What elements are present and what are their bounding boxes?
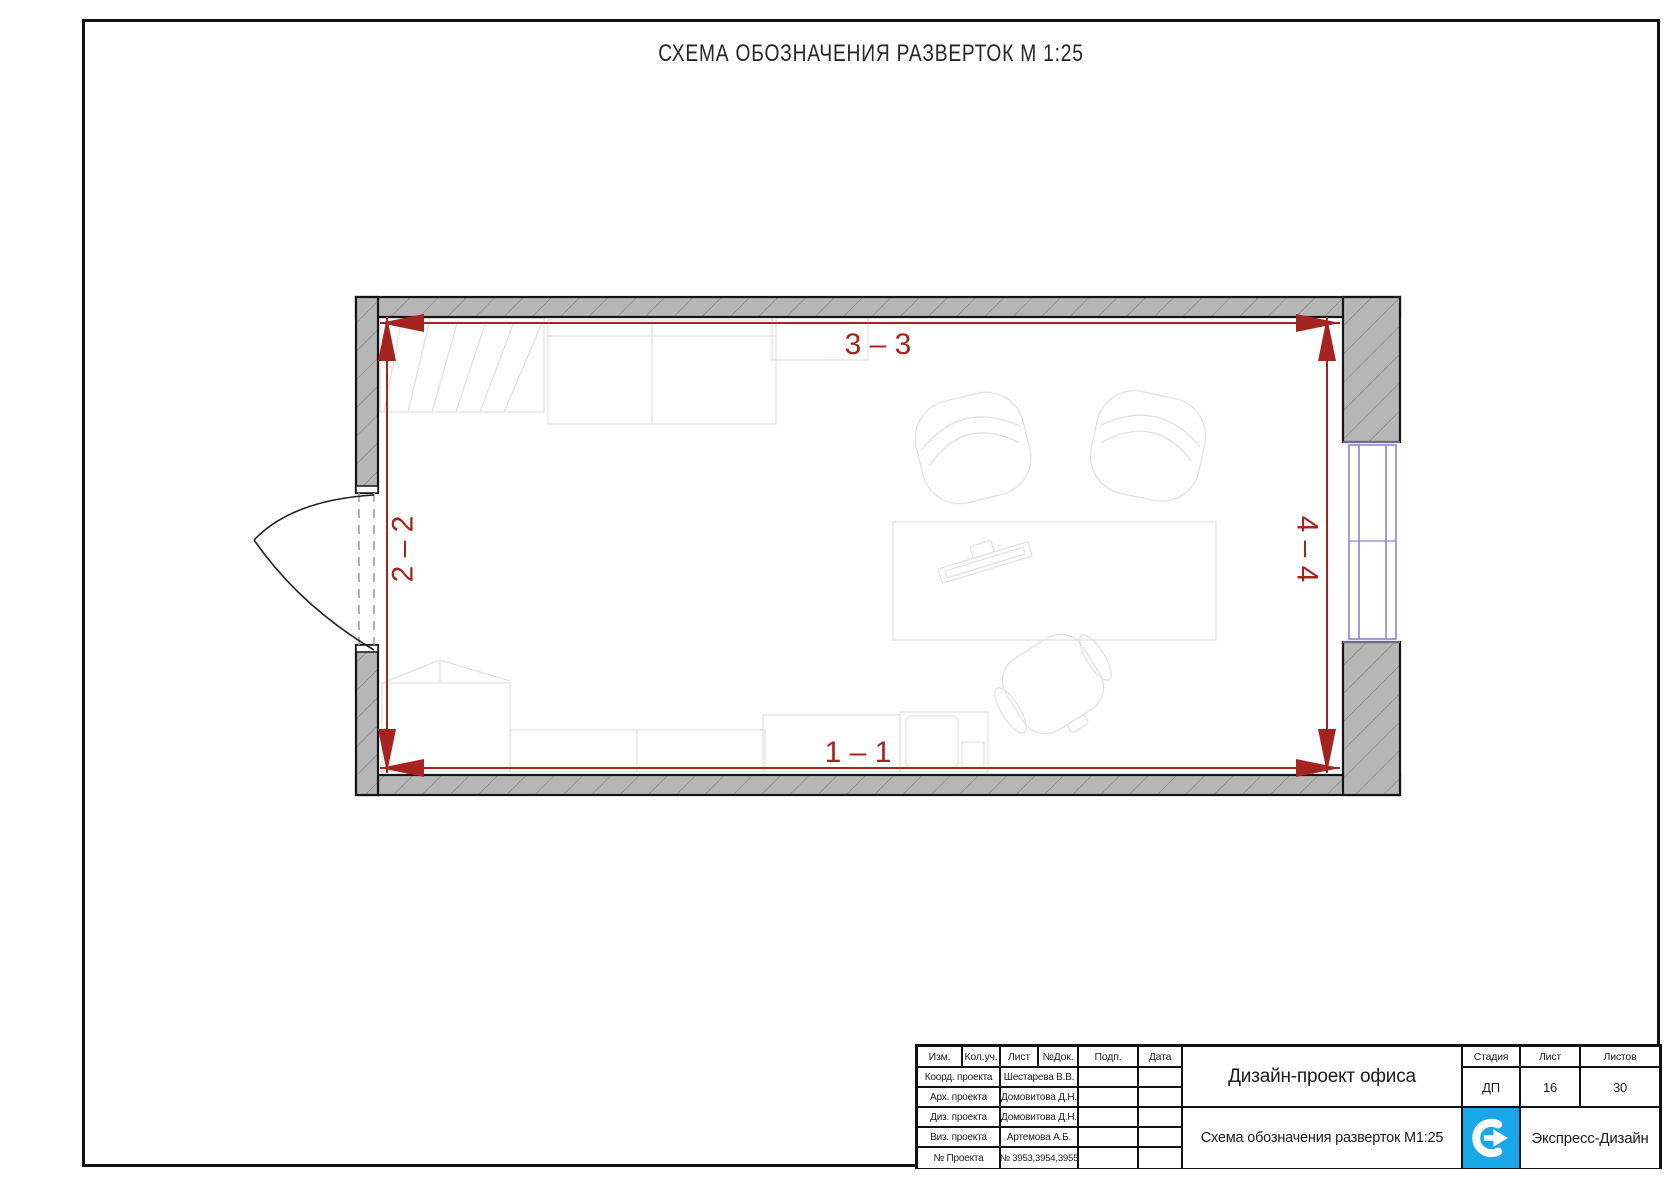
sheets-total-header: Листов <box>1580 1046 1660 1067</box>
tb-row-label: Арх. проекта <box>917 1087 1000 1107</box>
wall-right-upper <box>1343 297 1400 442</box>
sheet-number-value: 16 <box>1520 1067 1580 1107</box>
elevation-marker-labels: 3 – 3 1 – 1 2 – 2 4 – 4 <box>387 328 1324 769</box>
tb-row-date <box>1138 1067 1182 1087</box>
wall-top <box>356 297 1400 317</box>
tb-header-list: Лист <box>1000 1046 1038 1067</box>
marker-right: 4 – 4 <box>1291 516 1324 583</box>
coat-rack <box>382 660 510 771</box>
marker-top: 3 – 3 <box>845 328 912 361</box>
project-title: Дизайн-проект офиса <box>1182 1046 1462 1107</box>
door <box>254 486 378 652</box>
tb-header-izm: Изм. <box>917 1046 962 1067</box>
tb-row-label: № Проекта <box>917 1147 1000 1169</box>
tb-header-ndok: №Док. <box>1038 1046 1078 1067</box>
page-title-wrap: СХЕМА ОБОЗНАЧЕНИЯ РАЗВЕРТОК М 1:25 <box>82 40 1660 68</box>
tub-chair-1 <box>907 384 1039 512</box>
sheets-total-value: 30 <box>1580 1067 1660 1107</box>
sheet-number-header: Лист <box>1520 1046 1580 1067</box>
tb-row-sign <box>1078 1107 1138 1127</box>
tb-row-label: Виз. проекта <box>917 1127 1000 1147</box>
drawing-sheet: СХЕМА ОБОЗНАЧЕНИЯ РАЗВЕРТОК М 1:25 <box>0 0 1680 1187</box>
wall-right-lower <box>1343 642 1400 795</box>
tb-row-value: Шестарева В.В. <box>1000 1067 1078 1087</box>
tb-header-koluch: Кол.уч. <box>962 1046 1000 1067</box>
tb-row-sign <box>1078 1127 1138 1147</box>
marker-bottom: 1 – 1 <box>825 736 892 769</box>
tb-row-value: Домовитова Д.Н. <box>1000 1107 1078 1127</box>
sofa <box>548 320 776 424</box>
tb-header-data: Дата <box>1138 1046 1182 1067</box>
title-block: Изм. Кол.уч. Лист №Док. Подп. Дата Коорд… <box>915 1044 1662 1169</box>
furniture-layer <box>380 316 1216 772</box>
wall-bottom <box>356 775 1400 795</box>
stage-header: Стадия <box>1462 1046 1520 1067</box>
printer-stand <box>900 712 988 772</box>
door-swing-arc <box>254 495 374 540</box>
walls <box>356 297 1400 795</box>
office-chair <box>981 617 1131 759</box>
company-logo-icon <box>1467 1112 1515 1164</box>
company-logo <box>1462 1107 1520 1169</box>
tb-row-value: № 3953,3954,3955 <box>1000 1147 1078 1169</box>
tb-row-label: Коорд. проекта <box>917 1067 1000 1087</box>
stage-value: ДП <box>1462 1067 1520 1107</box>
elevation-dimensions <box>378 314 1340 777</box>
tb-row-label: Диз. проекта <box>917 1107 1000 1127</box>
tb-row-sign <box>1078 1147 1138 1169</box>
tub-chair-2 <box>1083 384 1212 509</box>
wall-left-lower <box>356 645 378 795</box>
tb-row-value: Домовитова Д.Н. <box>1000 1087 1078 1107</box>
wall-left-upper <box>356 297 378 493</box>
tb-row-date <box>1138 1087 1182 1107</box>
wardrobe <box>380 318 544 412</box>
tb-row-date <box>1138 1107 1182 1127</box>
tb-row-sign <box>1078 1087 1138 1107</box>
floor-plan: 3 – 3 1 – 1 2 – 2 4 – 4 <box>230 255 1430 825</box>
window <box>1343 442 1400 642</box>
tb-row-date <box>1138 1127 1182 1147</box>
door-leaf <box>254 540 374 650</box>
marker-left: 2 – 2 <box>387 516 420 583</box>
tb-row-date <box>1138 1147 1182 1169</box>
desk-monitor <box>934 530 1032 583</box>
tb-row-sign <box>1078 1067 1138 1087</box>
tb-header-podp: Подп. <box>1078 1046 1138 1067</box>
page-title: СХЕМА ОБОЗНАЧЕНИЯ РАЗВЕРТОК М 1:25 <box>658 40 1084 68</box>
sheet-title: Схема обозначения разверток М1:25 <box>1182 1107 1462 1169</box>
company-name: Экспресс-Дизайн <box>1520 1107 1660 1169</box>
tb-row-value: Артемова А.Б. <box>1000 1127 1078 1147</box>
